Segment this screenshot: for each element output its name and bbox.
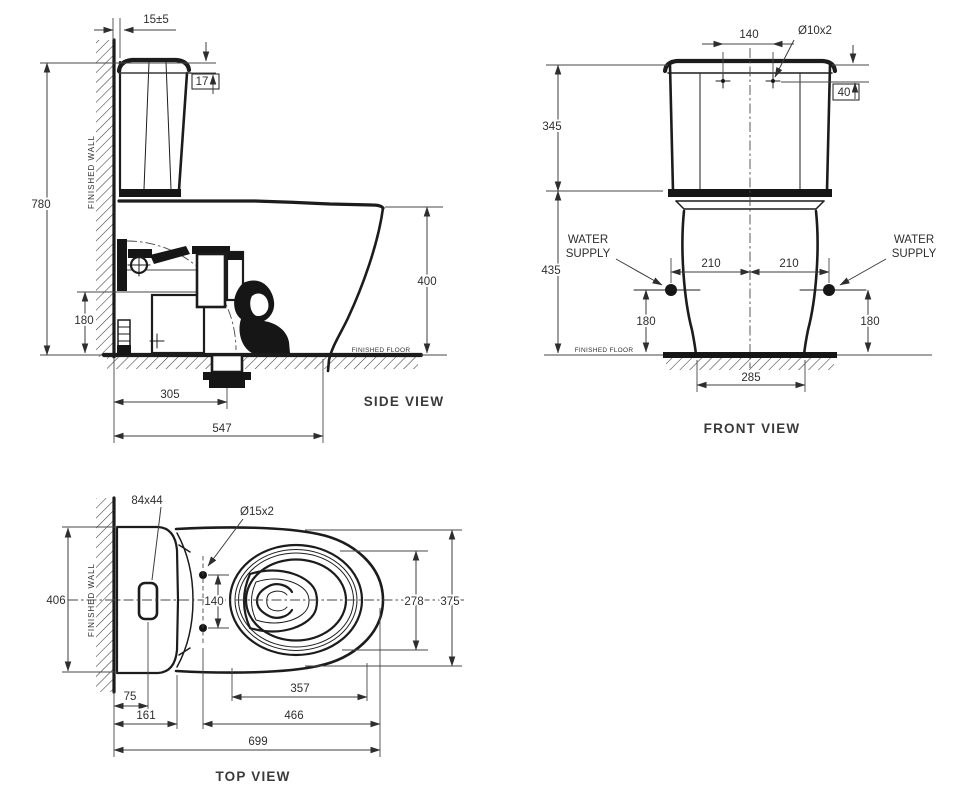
- front-water-supply: WATER SUPPLY WATER SUPPLY: [566, 234, 937, 296]
- water-supply-left-line1: WATER: [568, 234, 608, 246]
- dim-bolt-drop-label: 40: [838, 87, 851, 99]
- side-finished-floor-label: FINISHED FLOOR: [352, 347, 411, 354]
- top-finished-wall-label: FINISHED WALL: [87, 563, 96, 637]
- water-supply-right-line1: WATER: [894, 234, 934, 246]
- top-button-callout: 84x44: [131, 495, 163, 580]
- technical-drawing-canvas: 15±5 17 780 400 180 305: [0, 0, 956, 800]
- dim-tank-front-offset-label: 161: [136, 710, 155, 722]
- dim-button-offset-label: 75: [124, 691, 137, 703]
- dim-total-length-label: 699: [248, 736, 267, 748]
- dim-lid-drop-label: 17: [196, 76, 209, 88]
- dim-total-height-label: 780: [31, 199, 50, 211]
- side-tank: [119, 60, 191, 197]
- dim-base-width-label: 285: [741, 372, 760, 384]
- front-finished-floor: [544, 352, 932, 370]
- dim-outlet-offset-label: 305: [160, 389, 179, 401]
- dim-hole-to-front-label: 466: [284, 710, 303, 722]
- front-finished-floor-label: FINISHED FLOOR: [575, 347, 634, 354]
- dim-supply-offset-left-label: 210: [701, 258, 720, 270]
- dim-total-depth-label: 547: [212, 423, 231, 435]
- side-finished-wall-label: FINISHED WALL: [87, 135, 96, 209]
- front-view-title: FRONT VIEW: [704, 421, 801, 436]
- top-view-title: TOP VIEW: [215, 769, 290, 784]
- front-bolt-holes: [716, 74, 780, 88]
- dim-tank-height-label: 345: [542, 121, 561, 133]
- dim-rim-height-label: 400: [417, 276, 436, 288]
- side-view: 15±5 17 780 400 180 305: [31, 14, 447, 443]
- top-view: Ø15x2 84x44 406 140 278 375: [46, 495, 464, 784]
- dim-bowl-opening-length-label: 357: [290, 683, 309, 695]
- toilet-spec-drawing: 15±5 17 780 400 180 305: [0, 0, 956, 800]
- front-view: WATER SUPPLY WATER SUPPLY 140 Ø10x2 40: [541, 25, 936, 436]
- front-bowl: [682, 48, 817, 368]
- dim-overall-width-label: 406: [46, 595, 65, 607]
- side-finished-wall: [96, 40, 114, 357]
- side-view-title: SIDE VIEW: [364, 394, 445, 409]
- dim-inner-rim-width-label: 278: [404, 596, 423, 608]
- dim-bolt-holes-label: Ø10x2: [798, 25, 832, 37]
- water-supply-right-line2: SUPPLY: [892, 248, 937, 260]
- dim-hole-spacing-label: 140: [204, 596, 223, 608]
- dim-supply-height-right-label: 180: [860, 316, 879, 328]
- dim-supply-offset-right-label: 210: [779, 258, 798, 270]
- dim-rim-to-floor-label: 435: [541, 265, 560, 277]
- dim-button-size-label: 84x44: [131, 495, 163, 507]
- dim-seat-holes-label: Ø15x2: [240, 506, 274, 518]
- dim-inlet-height-label: 180: [74, 315, 93, 327]
- dim-bowl-width-label: 375: [440, 596, 459, 608]
- water-supply-left-line2: SUPPLY: [566, 248, 611, 260]
- dim-wall-gap-label: 15±5: [143, 14, 169, 26]
- side-finished-floor: [40, 355, 447, 369]
- dim-bolt-spacing-label: 140: [739, 29, 758, 41]
- dim-supply-height-left-label: 180: [636, 316, 655, 328]
